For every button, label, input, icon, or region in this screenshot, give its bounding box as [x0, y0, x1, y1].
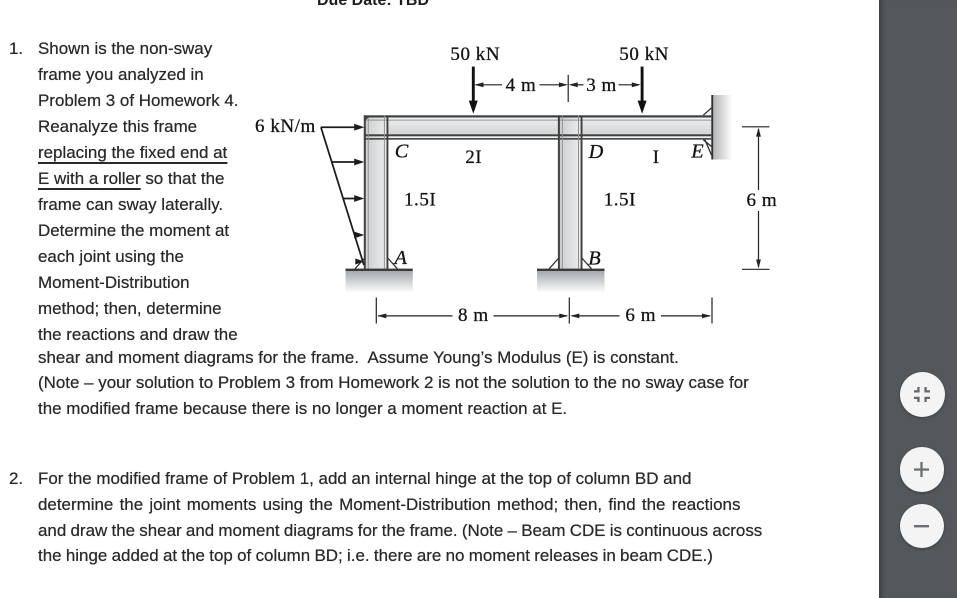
svg-text:1.5I: 1.5I: [404, 190, 436, 211]
svg-text:D: D: [588, 141, 604, 163]
svg-text:I: I: [653, 147, 660, 168]
svg-text:E: E: [690, 141, 704, 163]
svg-text:3 m: 3 m: [586, 75, 617, 96]
svg-text:6 m: 6 m: [625, 305, 656, 326]
svg-text:1.5I: 1.5I: [604, 190, 636, 211]
svg-text:4 m: 4 m: [506, 75, 537, 96]
svg-text:6 kN/m: 6 kN/m: [255, 116, 316, 137]
svg-text:6 m: 6 m: [747, 190, 778, 211]
svg-text:A: A: [393, 247, 408, 269]
svg-text:50 kN: 50 kN: [619, 44, 669, 65]
svg-text:B: B: [588, 247, 600, 269]
svg-text:C: C: [395, 141, 409, 163]
svg-text:50 kN: 50 kN: [450, 44, 500, 65]
svg-text:8 m: 8 m: [458, 305, 489, 326]
svg-text:2I: 2I: [465, 147, 482, 168]
